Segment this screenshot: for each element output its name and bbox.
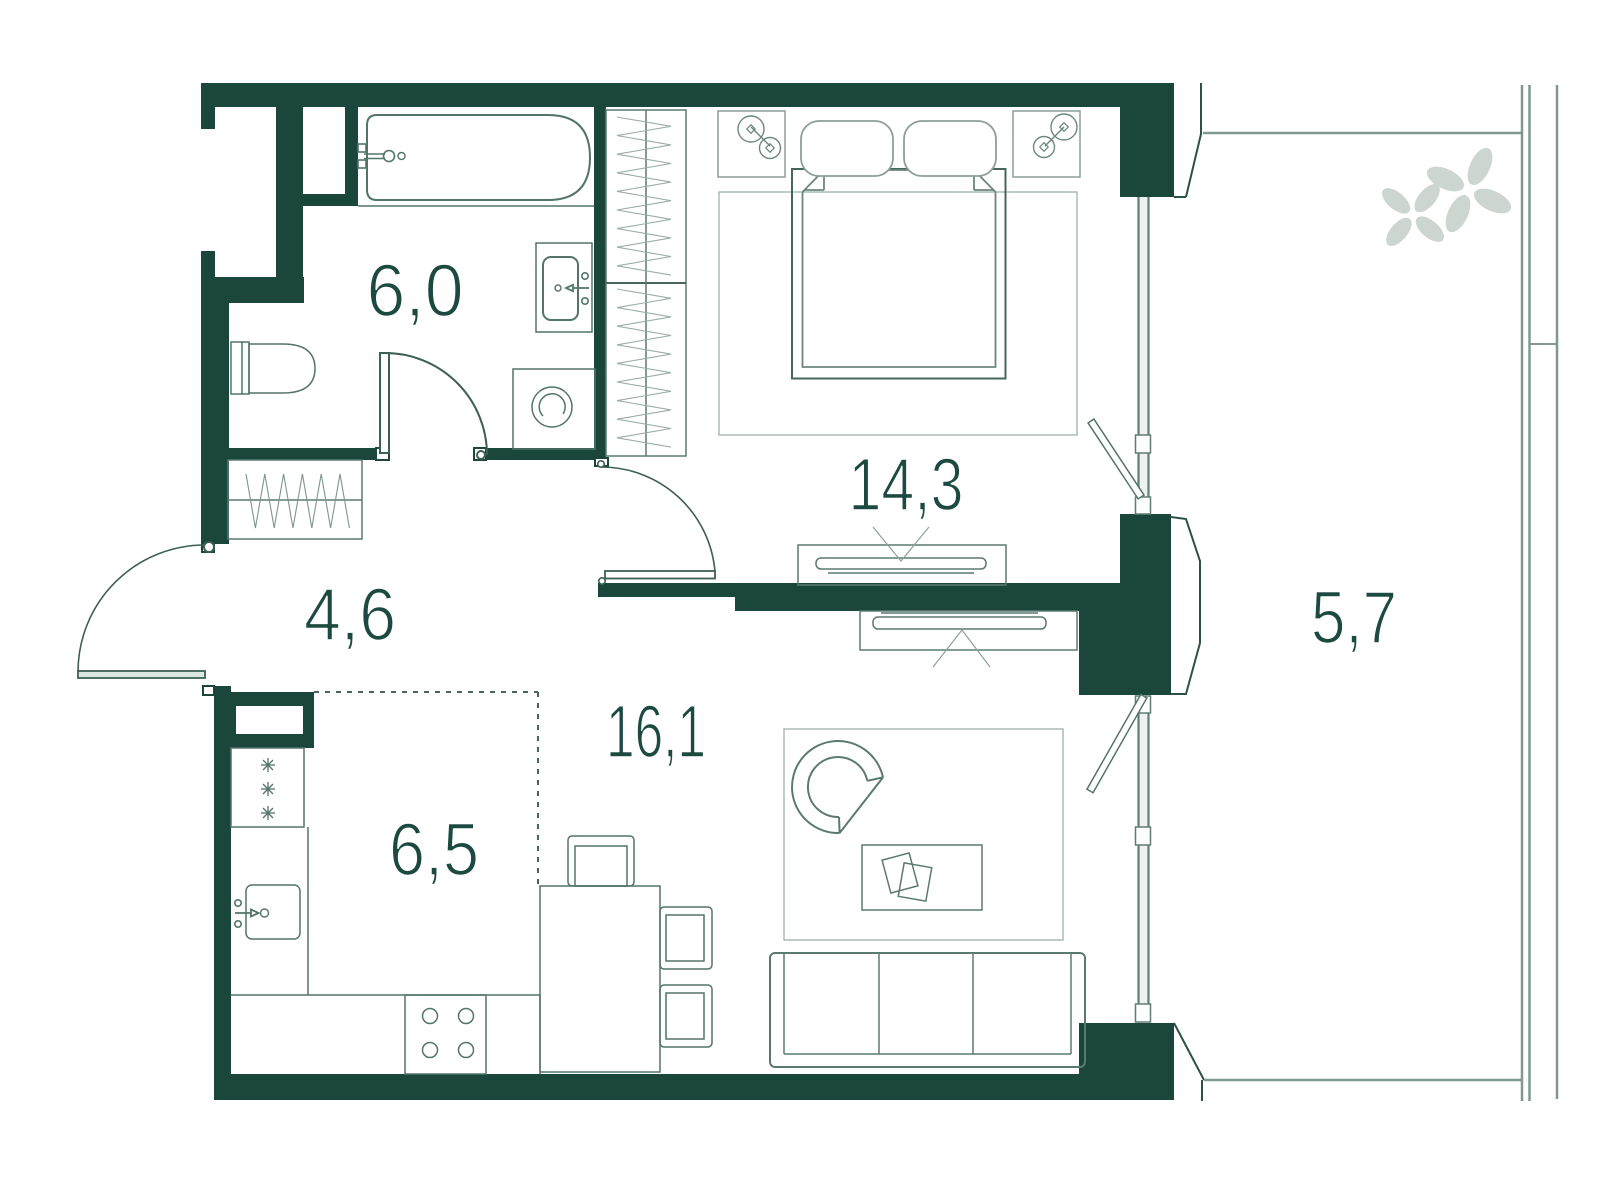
svg-text:16,1: 16,1 bbox=[606, 690, 706, 773]
svg-text:6,5: 6,5 bbox=[389, 808, 479, 891]
svg-text:14,3: 14,3 bbox=[849, 443, 964, 526]
svg-text:5,7: 5,7 bbox=[1311, 576, 1397, 659]
svg-text:4,6: 4,6 bbox=[304, 573, 396, 656]
svg-text:6,0: 6,0 bbox=[367, 249, 464, 332]
